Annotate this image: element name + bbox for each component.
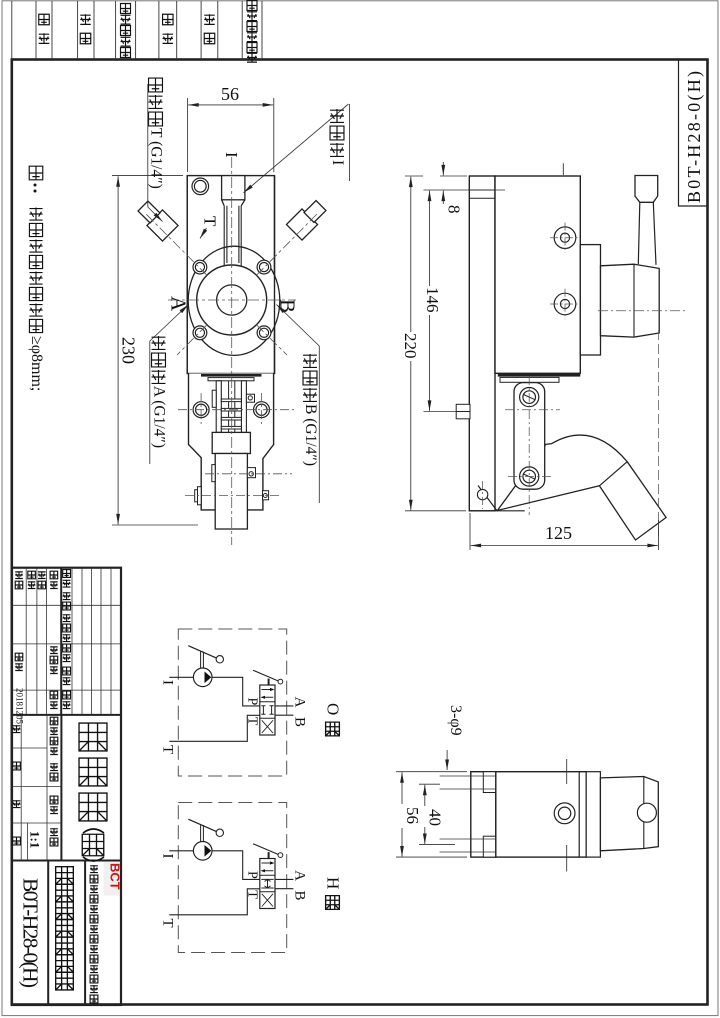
svg-text:230: 230 bbox=[118, 337, 138, 364]
svg-text:T: T bbox=[244, 890, 259, 899]
svg-text:B: B bbox=[292, 891, 308, 901]
svg-text:40: 40 bbox=[426, 809, 445, 826]
svg-text:P: P bbox=[244, 871, 259, 879]
svg-text:220: 220 bbox=[401, 333, 420, 359]
svg-text:3-φ9: 3-φ9 bbox=[447, 705, 464, 736]
svg-text:BCT: BCT bbox=[108, 863, 123, 890]
svg-text:56: 56 bbox=[403, 807, 422, 824]
svg-text:B: B bbox=[276, 299, 300, 313]
svg-text:T: T bbox=[160, 919, 176, 928]
svg-text:B0T-H28-0(H): B0T-H28-0(H) bbox=[19, 878, 43, 988]
svg-text:56: 56 bbox=[221, 84, 239, 104]
svg-text:B: B bbox=[292, 717, 308, 727]
svg-text:20181205: 20181205 bbox=[15, 688, 25, 725]
svg-text:1:1: 1:1 bbox=[28, 831, 43, 848]
svg-text:H: H bbox=[324, 877, 343, 889]
svg-text:I: I bbox=[329, 160, 346, 165]
svg-text:O: O bbox=[324, 703, 343, 715]
svg-text:B (G1/4″): B (G1/4″) bbox=[302, 404, 319, 466]
svg-text:≥φ8mm;: ≥φ8mm; bbox=[28, 336, 45, 391]
svg-text:P: P bbox=[244, 698, 259, 706]
svg-text:T (G1/4″): T (G1/4″) bbox=[148, 128, 165, 189]
svg-text:A: A bbox=[167, 296, 191, 312]
svg-text:A (G1/4″): A (G1/4″) bbox=[151, 386, 168, 448]
svg-text:B0T-H28-0(H): B0T-H28-0(H) bbox=[684, 71, 705, 203]
svg-text:125: 125 bbox=[545, 523, 572, 543]
svg-text:T: T bbox=[244, 717, 259, 726]
svg-text:146: 146 bbox=[423, 287, 442, 313]
svg-text:I: I bbox=[160, 854, 176, 859]
svg-text:8: 8 bbox=[445, 205, 464, 214]
svg-text:T: T bbox=[201, 216, 220, 227]
svg-text:A: A bbox=[292, 870, 308, 881]
svg-text:A: A bbox=[292, 697, 308, 708]
svg-text:T: T bbox=[160, 745, 176, 754]
svg-text:I: I bbox=[222, 152, 241, 158]
svg-text:I: I bbox=[160, 680, 176, 685]
